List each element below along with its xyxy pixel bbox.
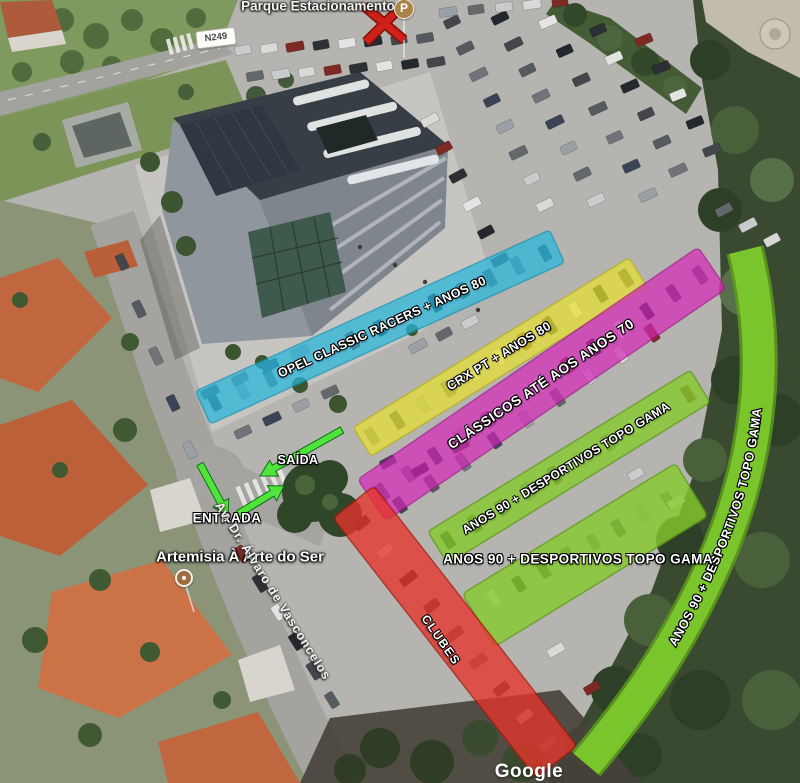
map-viewport[interactable]: ANOS 90 + DESPORTIVOS TOPO GAMA Parque E… [0,0,800,783]
satellite-scene: ANOS 90 + DESPORTIVOS TOPO GAMA [0,0,800,783]
place-pin[interactable] [175,569,193,587]
parking-poi-marker[interactable]: P [394,0,414,19]
